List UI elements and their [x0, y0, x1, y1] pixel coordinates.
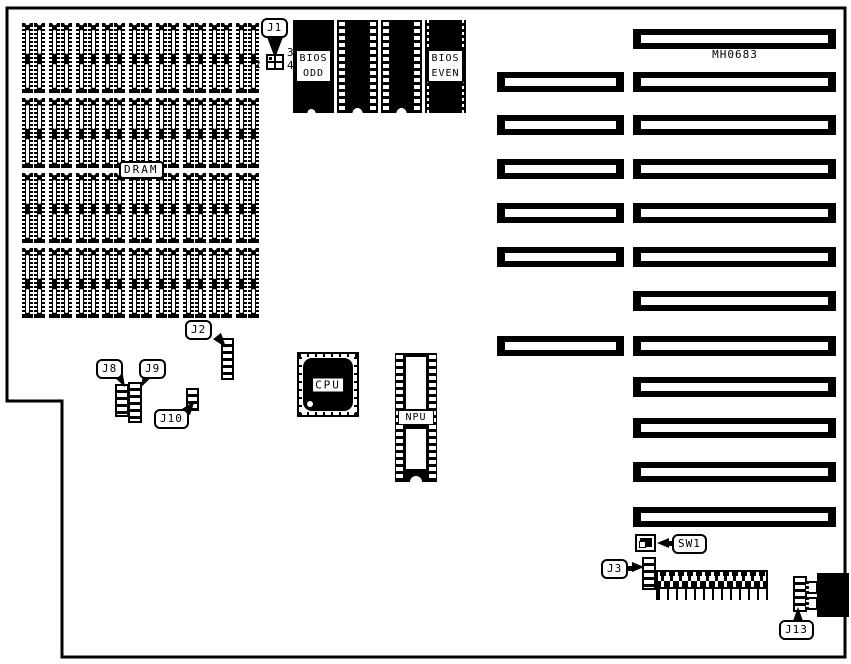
- dram-chip-pair: [209, 23, 232, 93]
- expansion-slot: [633, 462, 836, 482]
- power-connector-sockets: [658, 587, 766, 600]
- j2-callout: J2: [185, 320, 212, 340]
- dram-chip-pair: [49, 248, 72, 318]
- dram-chip: [236, 98, 247, 168]
- dram-chip: [236, 173, 247, 243]
- j1-callout: J1: [261, 18, 288, 38]
- dram-chip-pair: [76, 173, 99, 243]
- dram-chip: [141, 248, 152, 318]
- j3-pin-header: [642, 557, 656, 590]
- j8-label: J8: [102, 362, 117, 375]
- dram-chip: [183, 173, 194, 243]
- dram-chip: [88, 23, 99, 93]
- keyboard-connector-tab: [807, 581, 818, 594]
- dram-chip: [114, 248, 125, 318]
- sw1-label: SW1: [678, 537, 701, 550]
- cpu-chip: CPU: [297, 352, 359, 417]
- dram-chip-pair: [76, 98, 99, 168]
- dram-chip: [129, 98, 140, 168]
- dram-chip: [34, 23, 45, 93]
- dram-chip: [34, 248, 45, 318]
- dram-chip: [61, 98, 72, 168]
- sw1-switch: [635, 534, 656, 552]
- j1-pointer: [267, 37, 283, 54]
- dram-chip-pair: [129, 98, 152, 168]
- j10-callout: J10: [154, 409, 189, 429]
- dram-chip: [88, 173, 99, 243]
- dram-chip: [129, 23, 140, 93]
- dram-chip-pair: [22, 248, 45, 318]
- dram-chip: [34, 173, 45, 243]
- npu-window: [406, 357, 426, 409]
- expansion-slot: [633, 203, 836, 223]
- dram-chip-pair: [102, 173, 125, 243]
- dram-chip: [102, 173, 113, 243]
- dram-label: DRAM: [119, 161, 164, 179]
- expansion-slot: [497, 247, 624, 267]
- dram-chip: [22, 173, 33, 243]
- dram-chip: [209, 23, 220, 93]
- dram-chip: [49, 248, 60, 318]
- expansion-slot: [633, 418, 836, 438]
- dram-chip: [168, 23, 179, 93]
- npu-label: NPU: [398, 410, 434, 425]
- dram-chip: [114, 173, 125, 243]
- dram-chip: [102, 23, 113, 93]
- dram-chip-pair: [209, 98, 232, 168]
- dram-chip: [156, 98, 167, 168]
- dram-chip: [129, 173, 140, 243]
- bios-even-label: BIOS EVEN: [427, 49, 464, 83]
- expansion-slot: [633, 377, 836, 397]
- keyboard-connector-tab: [807, 597, 818, 610]
- dram-chip: [195, 248, 206, 318]
- j1-jumper-cell: [276, 56, 282, 61]
- expansion-slot: [497, 203, 624, 223]
- power-connector: [656, 570, 768, 600]
- expansion-slot: [497, 336, 624, 356]
- dram-chip-pair: [236, 248, 259, 318]
- dram-chip: [195, 173, 206, 243]
- expansion-slot: [633, 29, 836, 49]
- expansion-slot: [633, 159, 836, 179]
- dram-chip-pair: [49, 98, 72, 168]
- dram-chip: [141, 23, 152, 93]
- dram-chip: [76, 98, 87, 168]
- j1-jumper-block: [266, 54, 284, 70]
- dram-chip: [141, 98, 152, 168]
- dram-chip: [102, 98, 113, 168]
- j1-jumper-cell: [276, 63, 282, 68]
- rom-chip-bios-even: BIOS EVEN: [425, 20, 466, 113]
- dram-chip-pair: [156, 98, 179, 168]
- cpu-label: CPU: [313, 378, 343, 391]
- motherboard-diagram: DRAM J1 3 2 4 BIOS ODD BIOS EVEN MH0683: [0, 0, 851, 664]
- dram-chip: [76, 23, 87, 93]
- rom-chip-row: BIOS ODD BIOS EVEN: [293, 20, 466, 113]
- expansion-slot: [633, 291, 836, 311]
- dram-chip: [195, 98, 206, 168]
- slot-column-right: [633, 0, 836, 664]
- rom-chip-2: [337, 20, 378, 113]
- dram-chip: [221, 98, 232, 168]
- dram-chip-pair: [22, 98, 45, 168]
- dram-chip: [168, 98, 179, 168]
- dram-chip: [114, 23, 125, 93]
- dram-chip-pair: [49, 23, 72, 93]
- dram-chip: [221, 23, 232, 93]
- dram-chip: [236, 248, 247, 318]
- dram-chip-pair: [76, 248, 99, 318]
- dram-chip-pair: [156, 23, 179, 93]
- dram-chip: [209, 173, 220, 243]
- dram-row: [22, 173, 259, 243]
- j9-label: J9: [145, 362, 160, 375]
- dram-chip-pair: [102, 23, 125, 93]
- dram-chip-pair: [102, 248, 125, 318]
- j8-callout: J8: [96, 359, 123, 379]
- dram-chip: [221, 173, 232, 243]
- dram-chip: [168, 248, 179, 318]
- dram-chip: [76, 173, 87, 243]
- j13-label: J13: [785, 623, 808, 636]
- j3-callout: J3: [601, 559, 628, 579]
- dram-chip: [22, 98, 33, 168]
- j1-jumper-cell: [268, 63, 274, 68]
- dram-chip-pair: [183, 23, 206, 93]
- dram-chip: [248, 173, 259, 243]
- dram-chip-pair: [236, 98, 259, 168]
- expansion-slot: [497, 72, 624, 92]
- dram-chip: [183, 98, 194, 168]
- dram-chip: [102, 248, 113, 318]
- dram-chip-pair: [156, 248, 179, 318]
- dram-chip: [248, 98, 259, 168]
- dram-chip: [156, 23, 167, 93]
- dram-chip: [156, 248, 167, 318]
- dram-chip-pair: [183, 248, 206, 318]
- dram-chip: [61, 248, 72, 318]
- rom-chip-bios-odd: BIOS ODD: [293, 20, 334, 113]
- j13-pointer: [793, 607, 803, 621]
- dram-chip: [248, 248, 259, 318]
- dram-chip: [195, 23, 206, 93]
- dram-chip-pair: [129, 173, 152, 243]
- expansion-slot: [633, 336, 836, 356]
- dram-chip: [22, 23, 33, 93]
- j1-label: J1: [267, 21, 282, 34]
- dram-chip: [88, 248, 99, 318]
- expansion-slot: [633, 247, 836, 267]
- dram-chip: [34, 98, 45, 168]
- expansion-slot: [633, 72, 836, 92]
- dram-chip-pair: [209, 248, 232, 318]
- dram-chip-pair: [102, 98, 125, 168]
- j1-pin2-label: 2: [254, 59, 261, 71]
- dram-row: [22, 248, 259, 318]
- expansion-slot: [633, 507, 836, 527]
- sw1-callout: SW1: [672, 534, 707, 554]
- dram-chip-pair: [22, 23, 45, 93]
- j9-callout: J9: [139, 359, 166, 379]
- dram-chip: [141, 173, 152, 243]
- j9-pin-header: [128, 382, 142, 423]
- j13-callout: J13: [779, 620, 814, 640]
- j1-pin3-label: 3: [287, 47, 294, 59]
- dram-chip: [49, 173, 60, 243]
- dram-chip: [49, 98, 60, 168]
- dram-chip: [61, 23, 72, 93]
- dram-chip: [183, 23, 194, 93]
- dram-chip-pair: [183, 173, 206, 243]
- npu-window: [406, 429, 426, 469]
- j1-jumper-cell: [268, 56, 274, 61]
- dram-chip-pair: [76, 23, 99, 93]
- dram-chip: [156, 173, 167, 243]
- j3-pointer: [632, 562, 644, 572]
- dram-row: [22, 98, 259, 168]
- j2-label: J2: [191, 323, 206, 336]
- dram-chip: [209, 248, 220, 318]
- dram-chip-pair: [129, 23, 152, 93]
- npu-chip: NPU: [395, 353, 437, 482]
- expansion-slot: [497, 115, 624, 135]
- dram-chip-pair: [236, 173, 259, 243]
- dram-chip: [88, 98, 99, 168]
- dram-chip-pair: [156, 173, 179, 243]
- dram-chip: [76, 248, 87, 318]
- dram-chip: [129, 248, 140, 318]
- rom-chip-3: [381, 20, 422, 113]
- dram-row: [22, 23, 259, 93]
- dram-chip: [209, 98, 220, 168]
- bios-odd-label: BIOS ODD: [295, 49, 332, 83]
- expansion-slot: [497, 159, 624, 179]
- dram-chip: [221, 248, 232, 318]
- j10-label: J10: [160, 412, 183, 425]
- dram-chip-pair: [49, 173, 72, 243]
- expansion-slot: [633, 115, 836, 135]
- dram-chip: [49, 23, 60, 93]
- j8-pin-header: [115, 384, 129, 417]
- dram-chip: [22, 248, 33, 318]
- dram-chip-pair: [22, 173, 45, 243]
- j3-label: J3: [607, 562, 622, 575]
- dram-chip-pair: [129, 248, 152, 318]
- dram-chip: [183, 248, 194, 318]
- dram-chip: [61, 173, 72, 243]
- dram-chip-pair: [209, 173, 232, 243]
- dram-chip: [236, 23, 247, 93]
- dram-chip: [168, 173, 179, 243]
- dram-chip-pair: [183, 98, 206, 168]
- dram-chip: [114, 98, 125, 168]
- j1-pin4-label: 4: [287, 60, 294, 72]
- keyboard-connector: [817, 573, 849, 617]
